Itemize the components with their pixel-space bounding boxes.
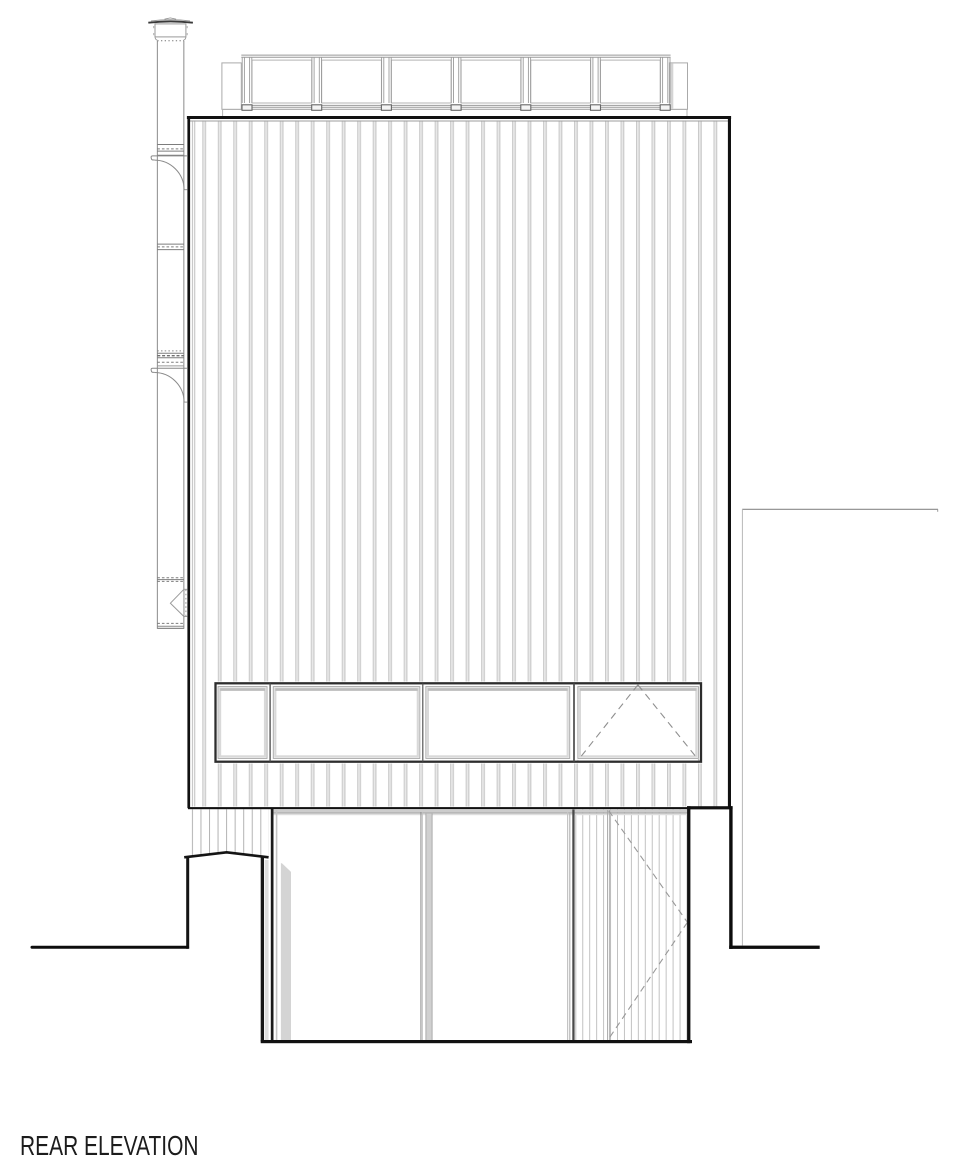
svg-text:REAR ELEVATION: REAR ELEVATION: [20, 1130, 199, 1161]
